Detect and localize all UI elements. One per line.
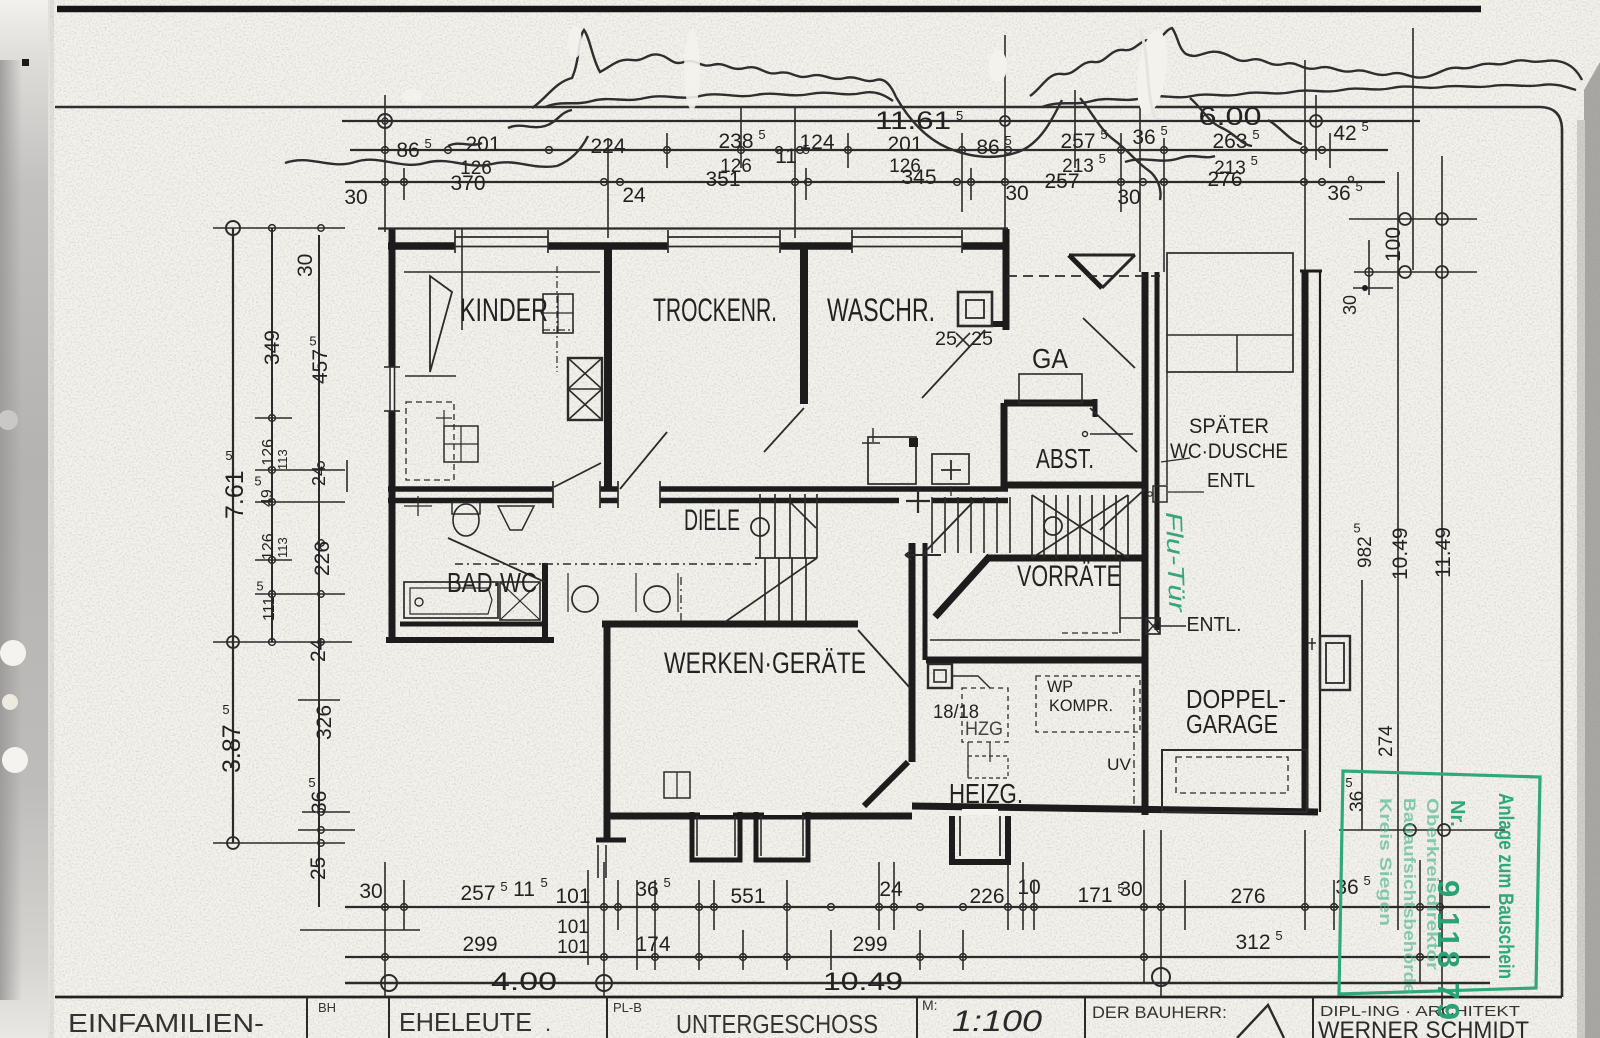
- svg-text:124: 124: [799, 131, 834, 154]
- svg-text:SPÄTER: SPÄTER: [1189, 415, 1269, 438]
- svg-text:111: 111: [261, 597, 278, 621]
- svg-text:UV: UV: [1107, 755, 1132, 774]
- svg-text:30: 30: [294, 254, 317, 277]
- svg-text:KINDER: KINDER: [460, 292, 548, 328]
- svg-text:36: 36: [1335, 876, 1358, 899]
- svg-text:25: 25: [935, 329, 957, 350]
- svg-text:5: 5: [1251, 153, 1258, 168]
- svg-text:HEIZG.: HEIZG.: [949, 778, 1023, 809]
- svg-text:Anlage zum Bauschein: Anlage zum Bauschein: [1494, 793, 1517, 979]
- svg-text:171: 171: [1077, 884, 1112, 907]
- svg-text:3.87: 3.87: [218, 724, 246, 773]
- svg-text:5: 5: [956, 108, 963, 123]
- svg-text:5: 5: [254, 473, 261, 488]
- svg-text:WERNER SCHMIDT: WERNER SCHMIDT: [1318, 1017, 1529, 1038]
- svg-text:24: 24: [309, 466, 329, 486]
- svg-text:113: 113: [275, 449, 290, 470]
- svg-text:GA: GA: [1032, 343, 1068, 374]
- svg-text:DIELE: DIELE: [684, 504, 740, 537]
- svg-text:PL-B: PL-B: [613, 1000, 642, 1015]
- svg-text:30: 30: [1005, 182, 1028, 205]
- svg-text:30: 30: [1340, 295, 1360, 315]
- svg-text:551: 551: [730, 885, 765, 908]
- svg-text:11: 11: [513, 878, 535, 901]
- svg-text:5: 5: [1353, 521, 1360, 536]
- svg-text:10.49: 10.49: [1389, 527, 1412, 580]
- svg-text:Flu-Tür: Flu-Tür: [1161, 511, 1191, 614]
- svg-text:11.49: 11.49: [1432, 527, 1455, 578]
- svg-text:UNTERGESCHOSS: UNTERGESCHOSS: [676, 1009, 878, 1038]
- svg-text:5: 5: [308, 775, 315, 790]
- svg-text:101: 101: [555, 885, 590, 908]
- svg-text:24: 24: [622, 184, 646, 207]
- svg-text:WC·DUSCHE: WC·DUSCHE: [1170, 440, 1288, 463]
- svg-text:274: 274: [1376, 725, 1397, 757]
- svg-text:5: 5: [425, 136, 432, 151]
- svg-text:30: 30: [1119, 878, 1142, 901]
- svg-text:349: 349: [261, 330, 284, 365]
- svg-text:24: 24: [879, 878, 903, 901]
- svg-text:5: 5: [1362, 119, 1369, 134]
- svg-text:DER BAUHERR:: DER BAUHERR:: [1092, 1003, 1227, 1022]
- svg-text:Kreis Siegen: Kreis Siegen: [1376, 798, 1395, 926]
- svg-text:30: 30: [359, 880, 382, 903]
- svg-text:982: 982: [1355, 536, 1376, 568]
- svg-text:42: 42: [1333, 122, 1356, 145]
- svg-text:1:100: 1:100: [952, 1005, 1042, 1038]
- svg-text:5: 5: [1161, 123, 1168, 138]
- svg-text:5: 5: [1275, 928, 1282, 943]
- svg-text:11: 11: [775, 145, 797, 168]
- svg-text:370: 370: [450, 172, 485, 195]
- svg-text:25: 25: [971, 329, 993, 350]
- svg-text:TROCKENR.: TROCKENR.: [653, 292, 777, 328]
- svg-text:5: 5: [225, 448, 232, 463]
- svg-text:GARAGE: GARAGE: [1186, 709, 1278, 739]
- svg-text:Bauaufsichtsbehörde: Bauaufsichtsbehörde: [1400, 798, 1419, 994]
- svg-text:36: 36: [1347, 791, 1368, 812]
- svg-text:257: 257: [1044, 170, 1079, 193]
- svg-text:30: 30: [344, 186, 367, 209]
- svg-text:5: 5: [256, 579, 263, 594]
- svg-text:299: 299: [852, 933, 887, 956]
- svg-text:5: 5: [1364, 873, 1371, 888]
- svg-text:299: 299: [462, 933, 497, 956]
- svg-text:238: 238: [718, 130, 753, 153]
- svg-text:226: 226: [969, 885, 1004, 908]
- svg-text:276: 276: [1207, 168, 1242, 191]
- svg-text:326: 326: [313, 705, 336, 740]
- svg-text:276: 276: [1230, 885, 1265, 908]
- svg-text:EINFAMILIEN-: EINFAMILIEN-: [68, 1008, 264, 1038]
- svg-text:10.49: 10.49: [823, 968, 903, 996]
- svg-text:VORRÄTE: VORRÄTE: [1017, 560, 1121, 593]
- svg-text:312: 312: [1235, 931, 1270, 954]
- svg-text:7.61: 7.61: [221, 470, 249, 519]
- svg-text:5: 5: [309, 333, 316, 348]
- svg-text:ENTL: ENTL: [1207, 470, 1255, 492]
- svg-text:5: 5: [500, 879, 507, 894]
- svg-text:49: 49: [259, 489, 276, 507]
- svg-text:WERKEN·GERÄTE: WERKEN·GERÄTE: [664, 647, 866, 680]
- svg-text:BAD·WC: BAD·WC: [447, 567, 537, 598]
- svg-text:EHELEUTE: EHELEUTE: [399, 1007, 532, 1037]
- svg-text:5: 5: [222, 702, 229, 717]
- svg-text:WP: WP: [1047, 677, 1073, 696]
- svg-text:5: 5: [1345, 775, 1352, 790]
- svg-text:Oberkreisdirektor: Oberkreisdirektor: [1423, 798, 1442, 970]
- svg-text:4.00: 4.00: [491, 968, 557, 996]
- svg-text:201: 201: [887, 133, 922, 156]
- svg-text:36: 36: [308, 791, 331, 814]
- svg-text:86: 86: [396, 139, 419, 162]
- svg-text:457: 457: [309, 349, 332, 384]
- svg-text:5: 5: [1099, 151, 1106, 166]
- svg-text:BH: BH: [318, 1000, 336, 1015]
- svg-text:113: 113: [275, 537, 290, 558]
- svg-text:345: 345: [901, 166, 936, 189]
- svg-text:WASCHR.: WASCHR.: [827, 292, 935, 328]
- svg-text:101: 101: [557, 917, 589, 938]
- svg-text:36: 36: [1327, 182, 1350, 205]
- svg-text:.: .: [545, 1011, 551, 1036]
- svg-text:5: 5: [541, 875, 548, 890]
- svg-text:5: 5: [1252, 127, 1259, 142]
- svg-text:101: 101: [557, 937, 589, 958]
- svg-text:5: 5: [664, 875, 671, 890]
- svg-text:Nr.: Nr.: [1446, 800, 1468, 827]
- svg-text:257: 257: [1060, 130, 1095, 153]
- svg-text:174: 174: [635, 933, 670, 956]
- svg-text:10: 10: [1017, 876, 1040, 899]
- svg-text:36: 36: [1132, 126, 1155, 149]
- svg-text:25: 25: [307, 857, 330, 880]
- svg-text:5: 5: [758, 127, 765, 142]
- svg-text:257: 257: [460, 882, 495, 905]
- svg-text:18/18: 18/18: [933, 702, 979, 723]
- svg-text:351: 351: [705, 168, 740, 191]
- svg-text:KOMPR.: KOMPR.: [1049, 696, 1113, 715]
- svg-text:5: 5: [1356, 179, 1363, 194]
- svg-text:226: 226: [311, 541, 334, 576]
- svg-text:ENTL.: ENTL.: [1187, 614, 1242, 636]
- svg-text:M:: M:: [922, 997, 938, 1013]
- svg-text:100: 100: [1382, 227, 1405, 262]
- svg-text:ABST.: ABST.: [1036, 443, 1094, 474]
